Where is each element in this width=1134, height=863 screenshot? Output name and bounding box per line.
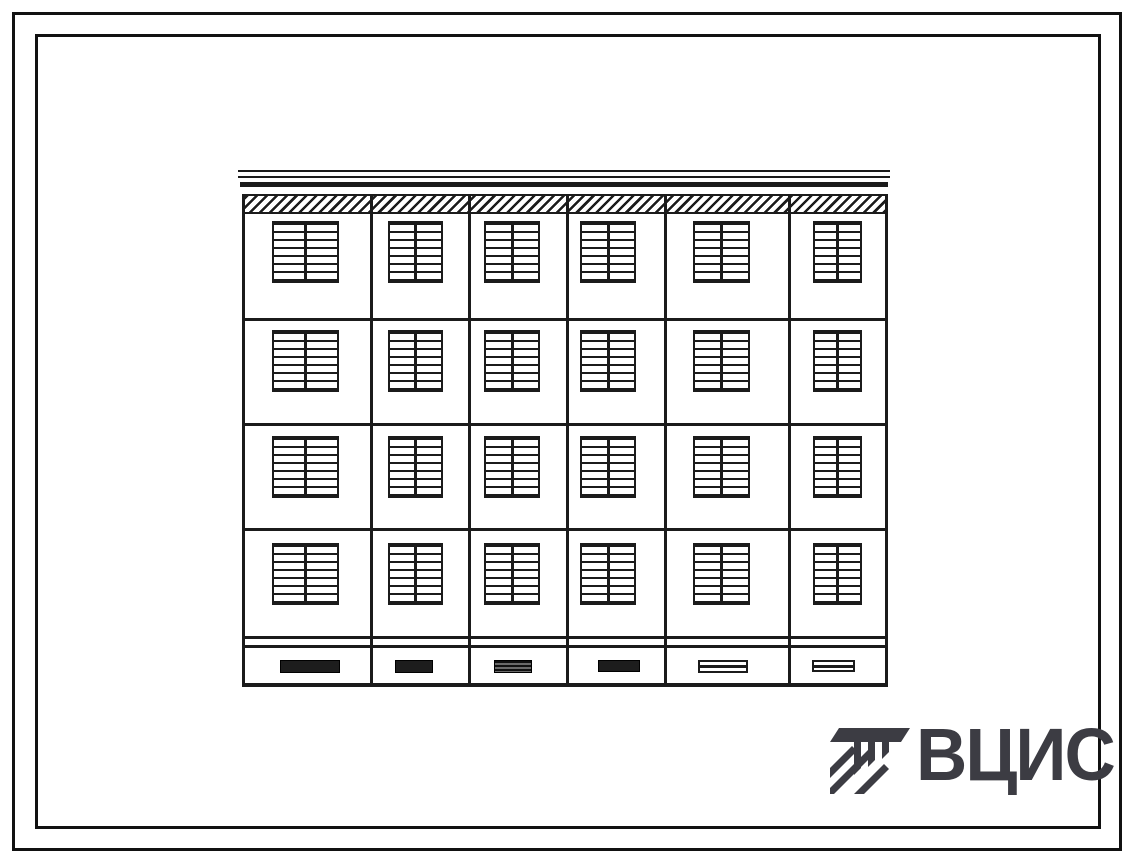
- floor-line: [242, 636, 888, 639]
- facade-window: [388, 436, 443, 498]
- basement-window: [494, 660, 532, 673]
- basement-window: [280, 660, 340, 673]
- logo-text: ВЦИС: [916, 712, 1114, 798]
- facade-window: [580, 543, 636, 605]
- facade-window: [693, 221, 750, 283]
- facade-window: [813, 221, 862, 283]
- floor-line: [242, 423, 888, 426]
- panel-seam: [370, 194, 373, 686]
- parapet-line: [238, 170, 890, 172]
- vcis-logo: ВЦИС: [830, 718, 1090, 804]
- panel-seam: [566, 194, 569, 686]
- facade-window: [693, 436, 750, 498]
- facade-window: [580, 221, 636, 283]
- panel-seam: [664, 194, 667, 686]
- panel-seam: [468, 194, 471, 686]
- facade-window: [272, 221, 339, 283]
- basement-window: [395, 660, 433, 673]
- facade-window: [484, 221, 540, 283]
- parapet-line: [238, 176, 890, 178]
- facade-window: [813, 543, 862, 605]
- basement-window: [698, 660, 748, 673]
- facade-window: [813, 330, 862, 392]
- floor-line: [242, 528, 888, 531]
- facade-window: [580, 436, 636, 498]
- hatched-construction-emblem-icon: [830, 726, 910, 794]
- panel-seam: [788, 194, 791, 686]
- facade-window: [484, 330, 540, 392]
- basement-window: [598, 660, 640, 672]
- basement-window: [812, 660, 855, 672]
- floor-line: [242, 318, 888, 321]
- facade-window: [693, 543, 750, 605]
- facade-window: [388, 543, 443, 605]
- facade-window: [484, 436, 540, 498]
- facade-window: [580, 330, 636, 392]
- facade-window: [813, 436, 862, 498]
- facade-window: [388, 330, 443, 392]
- facade-window: [272, 330, 339, 392]
- facade-window: [272, 436, 339, 498]
- facade-window: [272, 543, 339, 605]
- facade-window: [484, 543, 540, 605]
- facade-window: [388, 221, 443, 283]
- parapet-line: [240, 182, 888, 187]
- floor-line: [242, 683, 888, 687]
- floor-line: [242, 645, 888, 648]
- facade-window: [693, 330, 750, 392]
